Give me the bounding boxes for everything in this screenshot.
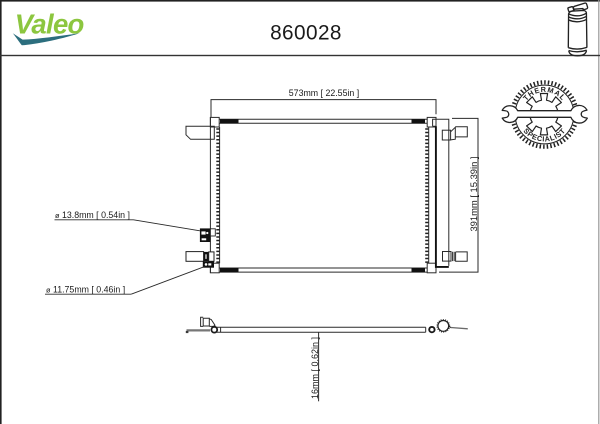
svg-text:ø 11.75mm [ 0.46in ]: ø 11.75mm [ 0.46in ]	[46, 285, 125, 295]
svg-text:860028: 860028	[270, 21, 342, 44]
svg-text:391mm [ 15.39in ]: 391mm [ 15.39in ]	[468, 156, 479, 231]
svg-text:ø 13.8mm [ 0.54in ]: ø 13.8mm [ 0.54in ]	[55, 210, 130, 220]
svg-text:573mm [ 22.55in ]: 573mm [ 22.55in ]	[289, 88, 359, 98]
svg-text:16mm [ 0.62in ]: 16mm [ 0.62in ]	[310, 337, 320, 399]
